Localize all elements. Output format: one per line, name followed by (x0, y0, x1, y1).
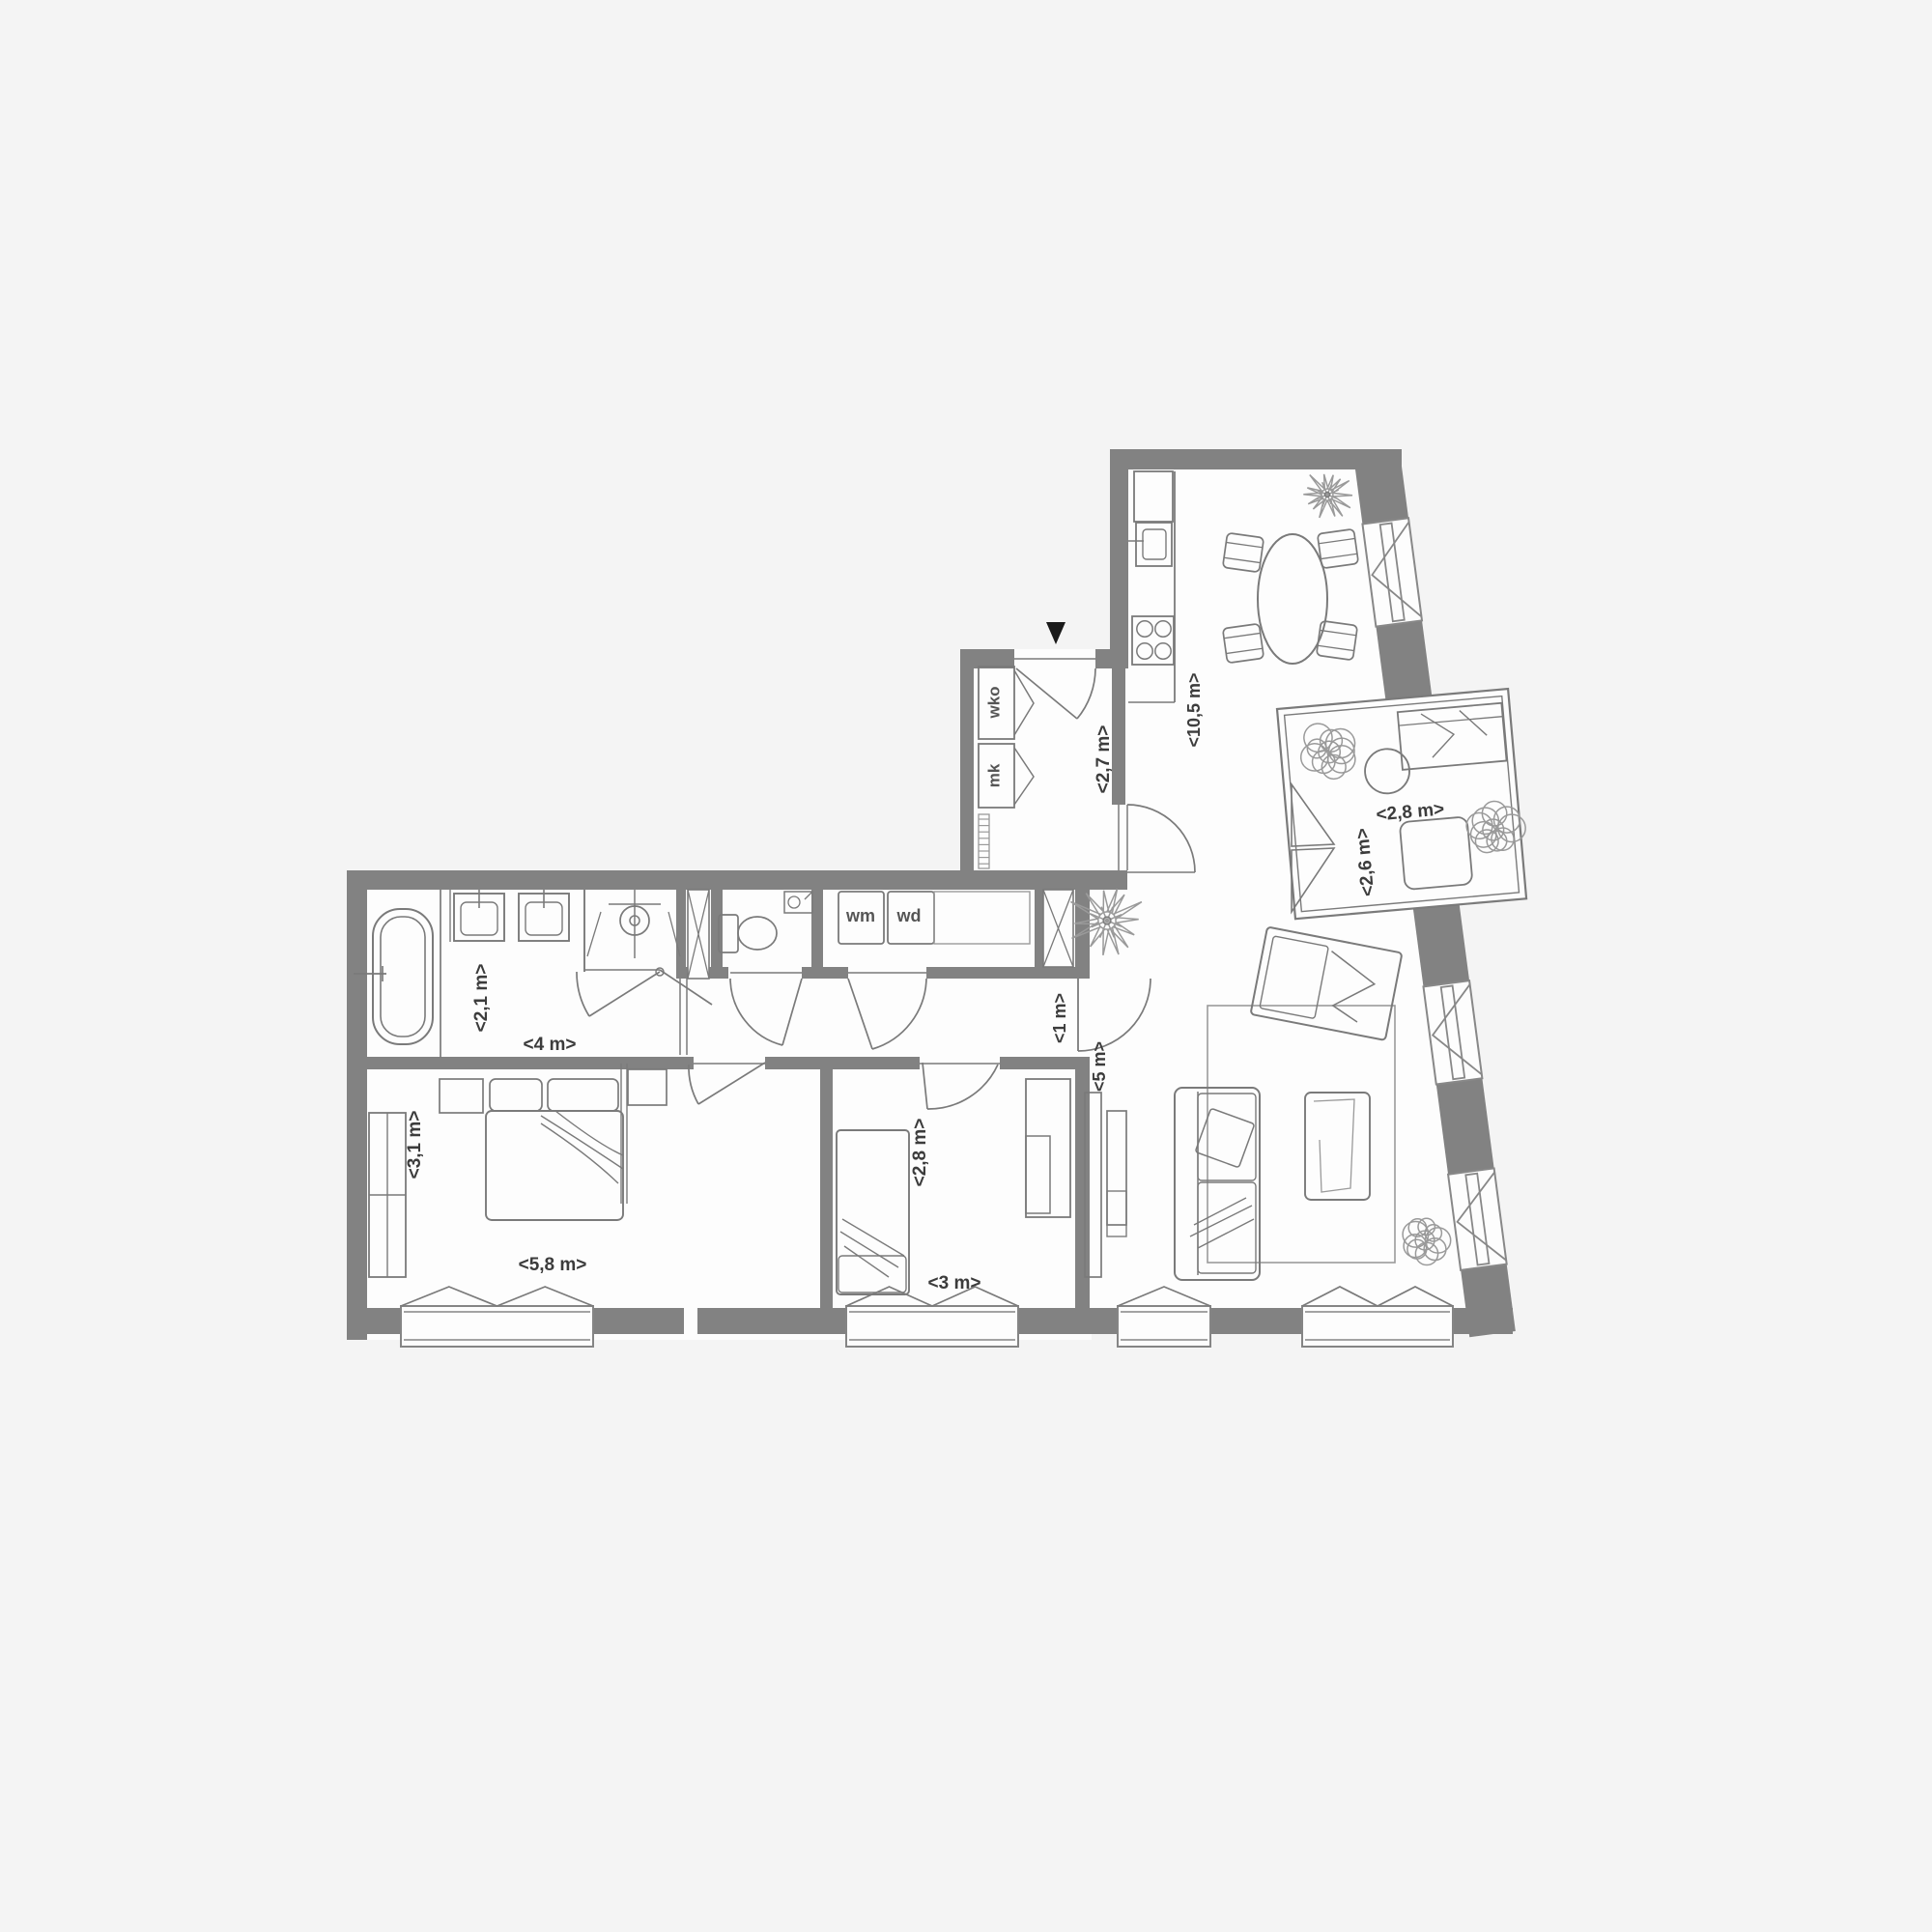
svg-text:<5,8 m>: <5,8 m> (519, 1255, 587, 1275)
svg-text:<5 m>: <5 m> (1090, 1041, 1109, 1092)
svg-text:<2,7 m>: <2,7 m> (1094, 725, 1114, 794)
svg-text:<4 m>: <4 m> (524, 1035, 577, 1055)
svg-text:<1 m>: <1 m> (1050, 993, 1069, 1043)
svg-text:mk: mk (984, 763, 1003, 787)
svg-text:wko: wko (984, 686, 1003, 719)
svg-text:<10,5 m>: <10,5 m> (1184, 672, 1204, 747)
svg-text:wd: wd (896, 906, 922, 925)
svg-text:<2,1 m>: <2,1 m> (471, 964, 492, 1033)
svg-text:<3,1 m>: <3,1 m> (405, 1111, 425, 1179)
svg-text:wm: wm (845, 906, 875, 925)
svg-text:<2,8 m>: <2,8 m> (910, 1119, 930, 1187)
svg-text:<3 m>: <3 m> (928, 1273, 981, 1293)
